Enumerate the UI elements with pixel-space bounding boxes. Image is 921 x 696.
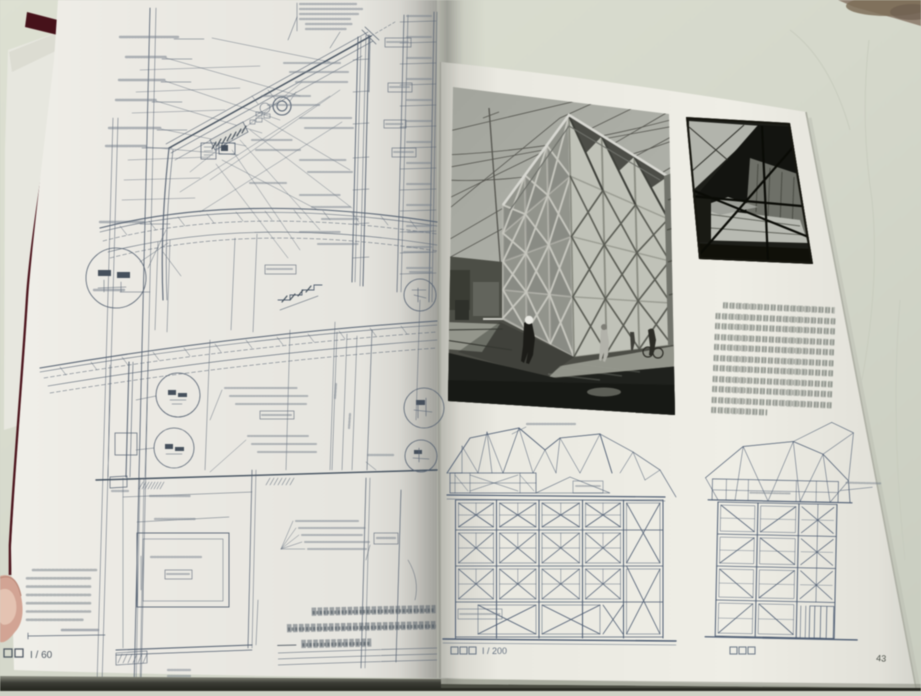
svg-text:43: 43: [876, 653, 887, 664]
svg-text:I / 200: I / 200: [482, 646, 507, 656]
svg-text:I / 60: I / 60: [30, 650, 53, 661]
